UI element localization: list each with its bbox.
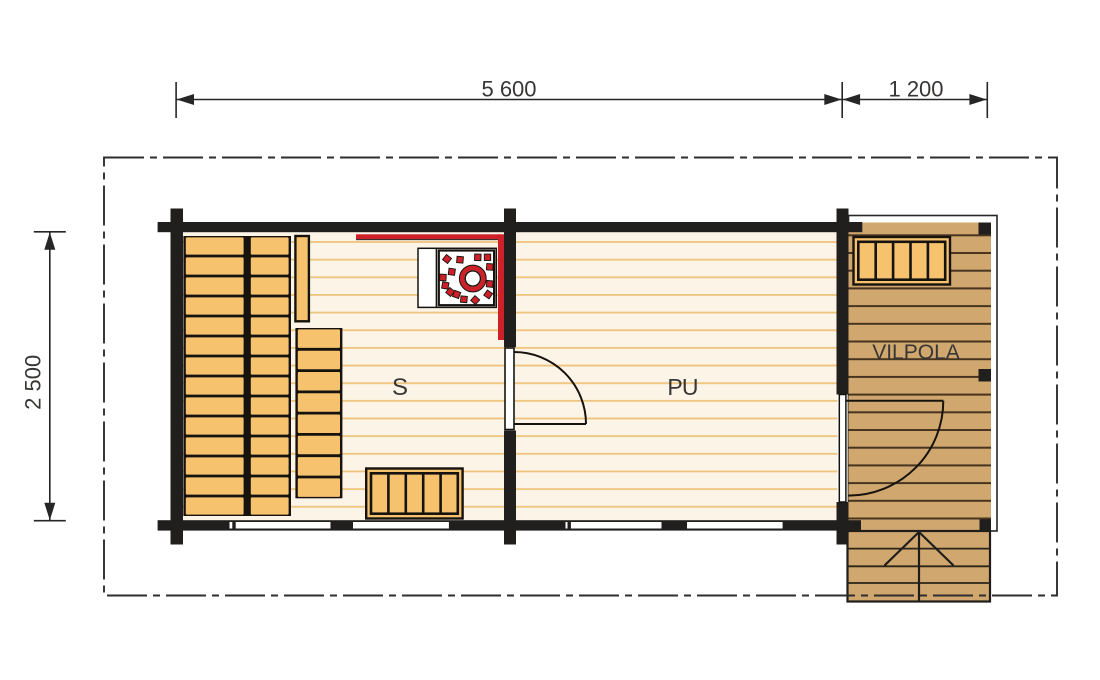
svg-text:1 200: 1 200 — [888, 77, 943, 102]
svg-text:VILPOLA: VILPOLA — [872, 341, 960, 364]
svg-text:2 500: 2 500 — [21, 355, 46, 410]
svg-text:PU: PU — [667, 374, 697, 400]
svg-text:5 600: 5 600 — [481, 77, 536, 102]
svg-text:S: S — [392, 374, 408, 401]
